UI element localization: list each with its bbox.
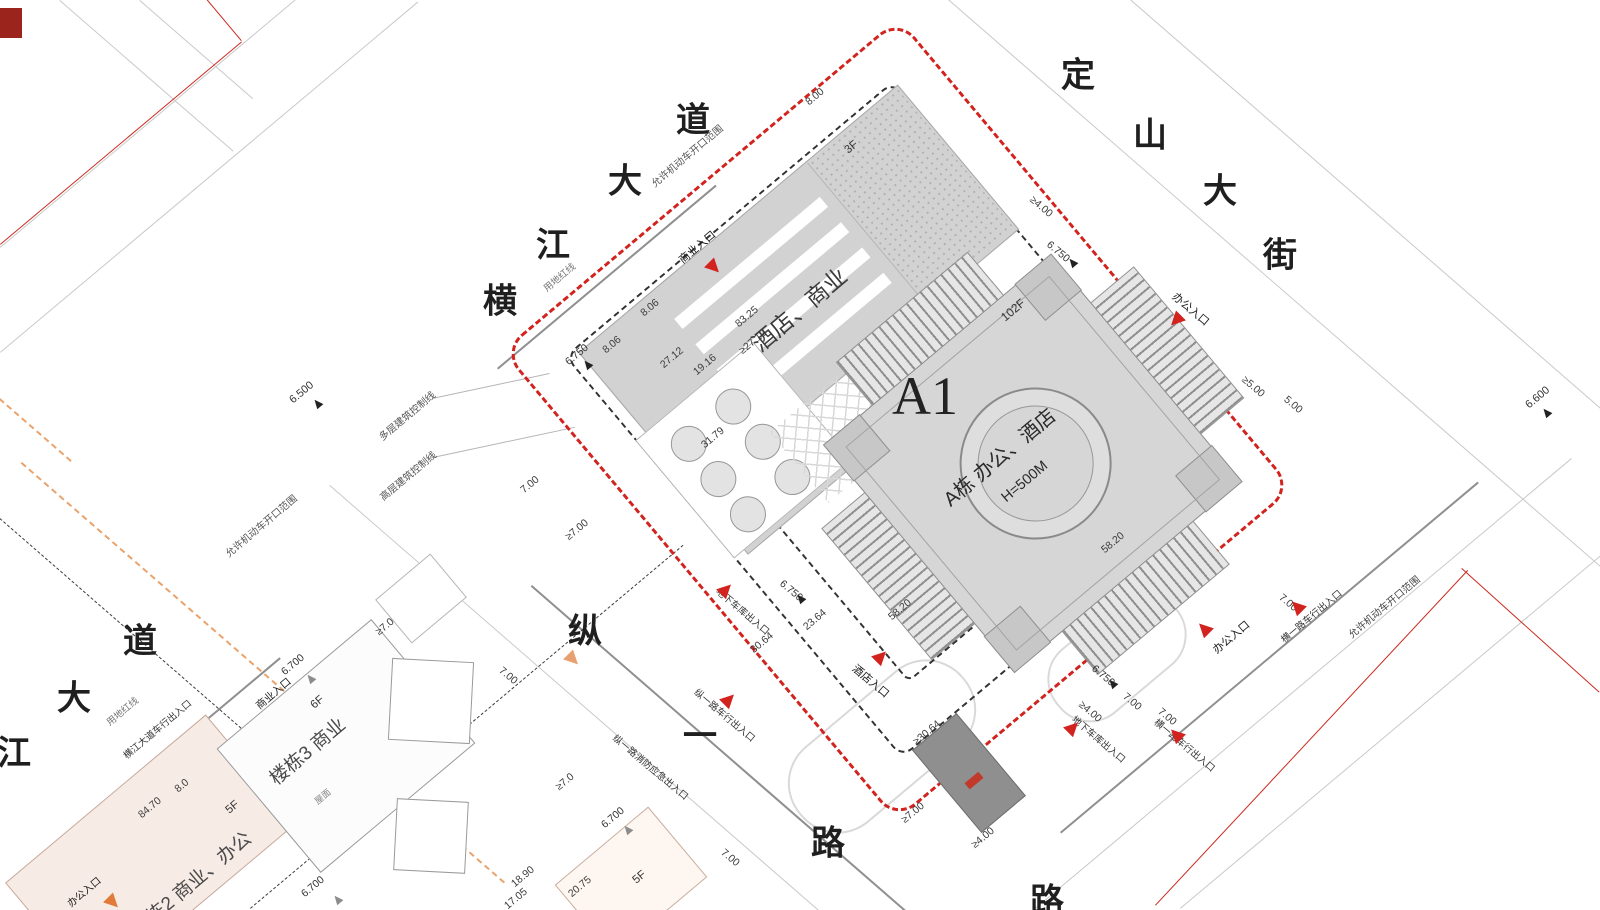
street-name-char: 路 (811, 816, 845, 865)
redline-corner-mark (0, 8, 22, 38)
building-3-annex (388, 658, 474, 744)
entrance-label: 纵一路消防应急出入口 (611, 734, 690, 802)
street-name-char: 大 (57, 671, 91, 720)
planter-circle (708, 381, 759, 432)
note-label: 高层建筑控制线 (379, 451, 439, 504)
dimension-label: 7.00 (719, 847, 741, 868)
gatehouse-mark (965, 772, 984, 790)
parcel2-redline (0, 398, 72, 462)
building-3-annex (393, 798, 469, 874)
dimension-label: 7.00 (1121, 691, 1143, 712)
label-leader-line (428, 427, 575, 459)
elevation-marker-icon (311, 397, 323, 409)
dimension-label: ≥7.0 (374, 616, 396, 637)
site-plan-drawing: 横江大道定山大街江大道纵一路路8.003F用地红线允许机动车开口范围商业入口8.… (0, 0, 1600, 910)
street-name-char: 路 (1030, 874, 1064, 910)
road-line (0, 2, 418, 353)
dimension-label: 17.05 (503, 887, 530, 910)
dimension-label: ≥7.0 (554, 771, 576, 792)
street-name-char: 纵 (568, 604, 602, 653)
street-name-char: 街 (1263, 228, 1297, 277)
street-name-char: 山 (1133, 108, 1167, 157)
note-label: 允许机动车开口范围 (224, 494, 299, 560)
planter-circle (693, 454, 744, 505)
dimension-label: 5.00 (1282, 394, 1304, 415)
street-name-char: 道 (123, 614, 157, 663)
street-name-char: 大 (1203, 164, 1237, 213)
street-name-char: 大 (608, 154, 642, 203)
note-label: 多层建筑控制线 (378, 391, 438, 444)
street-name-char: 江 (536, 218, 570, 267)
elevation-marker-icon (1540, 406, 1552, 418)
note-label: 用地红线 (542, 262, 577, 294)
tower-corner-pavilion (1175, 445, 1243, 513)
road-line (0, 0, 296, 248)
dimension-label: 18.90 (510, 865, 537, 890)
vehicle-opening-line (193, 0, 242, 41)
street-name-char: 一 (683, 709, 717, 758)
elevation-label: 6.700 (300, 875, 327, 900)
vehicle-opening-line (0, 42, 242, 245)
entrance-arrow-icon (1194, 619, 1214, 639)
elevation-marker-icon (331, 893, 343, 905)
street-name-char: 定 (1061, 48, 1095, 97)
planter-circle (723, 489, 774, 540)
street-name-char: 江 (0, 726, 31, 775)
street-name-char: 横 (483, 274, 517, 323)
note-label: 用地红线 (105, 696, 140, 728)
entrance-label: 办公入口 (1212, 620, 1253, 657)
elevation-label: 6.700 (280, 653, 307, 678)
dimension-label: ≥5.00 (1240, 375, 1267, 400)
dimension-label: ≥4.00 (970, 826, 997, 851)
dimension-label: ≥7.00 (564, 518, 591, 543)
vehicle-opening-line (1461, 568, 1599, 693)
road-line (59, 0, 233, 152)
building-label: A1 (892, 369, 958, 423)
dimension-label: 7.00 (519, 474, 541, 495)
